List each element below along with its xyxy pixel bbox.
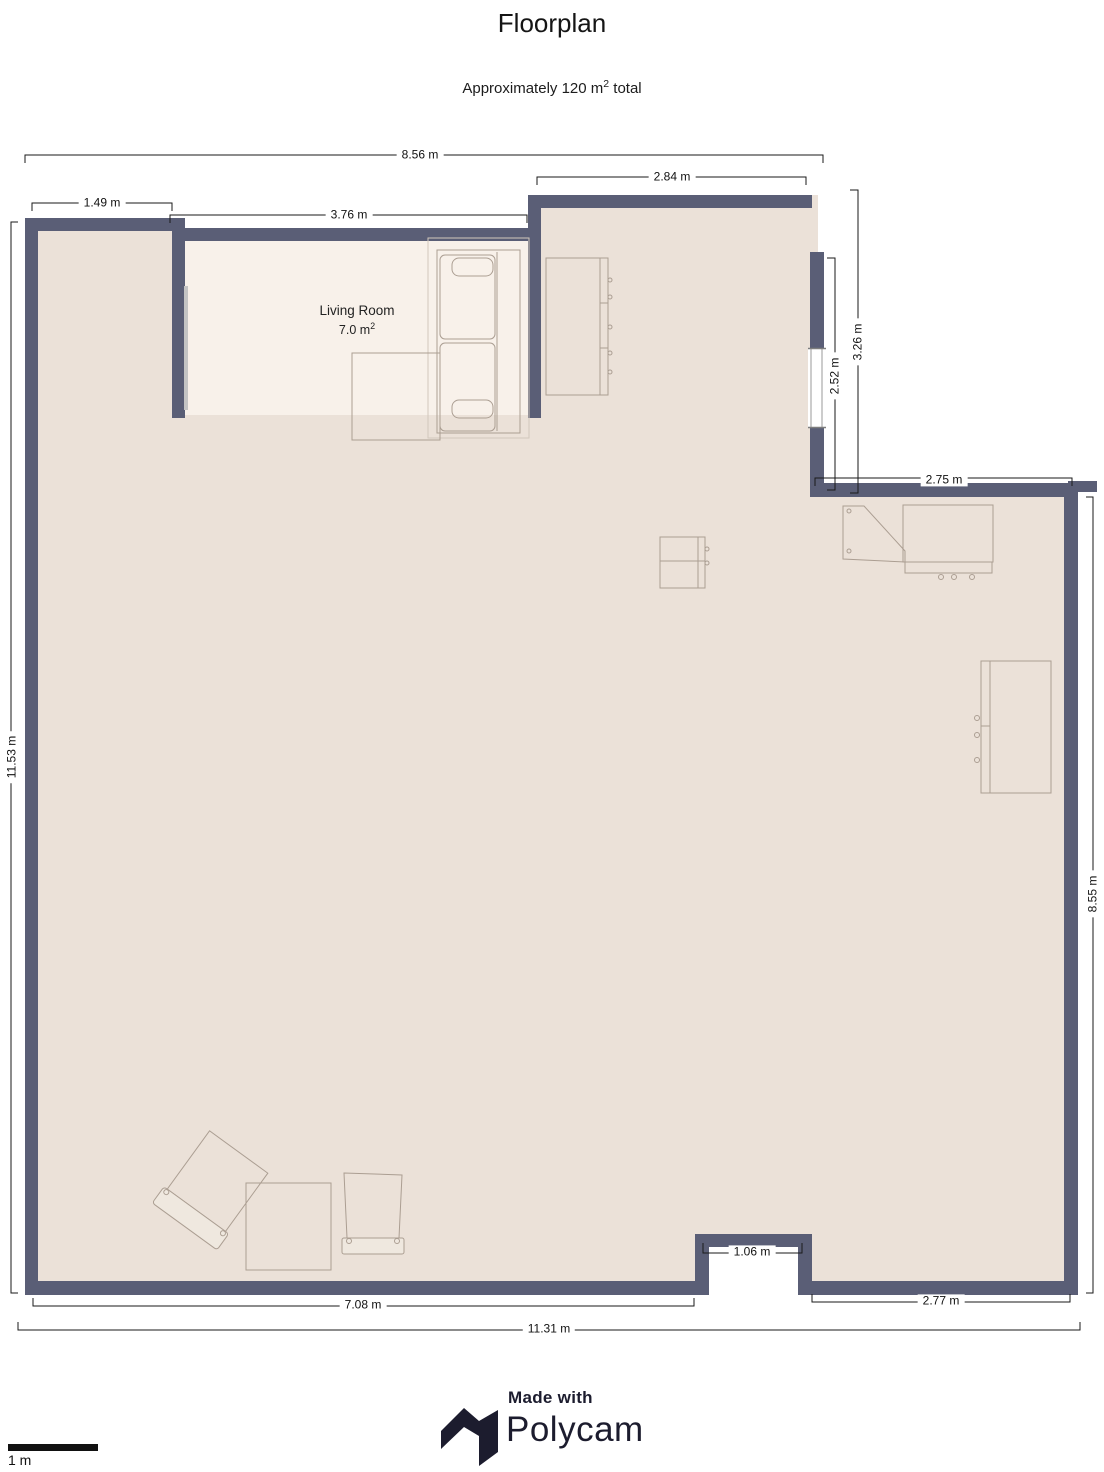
- dimension-left-height: 11.53 m: [5, 731, 18, 783]
- polycam-logo-icon: [441, 1408, 498, 1466]
- dimension-upper-right-width: 2.84 m: [649, 170, 696, 183]
- dimension-top-width: 8.56 m: [397, 148, 444, 161]
- scale-bar: [8, 1444, 98, 1451]
- dimension-living-room-width: 3.76 m: [326, 208, 373, 221]
- dimension-bottom-right-width: 2.77 m: [918, 1294, 965, 1307]
- window-right: [808, 348, 826, 428]
- dimension-right-wing-height: 3.26 m: [851, 319, 864, 366]
- dimension-door-width: 1.06 m: [729, 1245, 776, 1258]
- wall-upper-room-left: [528, 195, 541, 418]
- dimension-right-height: 8.55 m: [1086, 871, 1099, 918]
- dimension-window-height: 2.52 m: [828, 353, 841, 400]
- dimension-bottom-left-width: 7.08 m: [340, 1298, 387, 1311]
- scale-bar-label: 1 m: [8, 1452, 31, 1468]
- wall-left: [25, 218, 38, 1295]
- living-room-area: 7.0 m2: [319, 321, 394, 337]
- living-room-name: Living Room: [319, 303, 394, 318]
- made-with-text: Made with: [508, 1388, 593, 1408]
- wall-nook-right: [172, 218, 185, 418]
- wall-upper-room-top: [528, 195, 812, 208]
- dimension-nook-width: 1.49 m: [79, 196, 126, 209]
- wall-right-upper-a: [810, 252, 824, 348]
- floorplan-canvas: [0, 0, 1104, 1472]
- brand-text: Polycam: [506, 1410, 644, 1450]
- dimension-total-width: 11.31 m: [523, 1322, 575, 1335]
- wall-right: [1064, 483, 1078, 1295]
- living-room-label: Living Room 7.0 m2: [319, 303, 394, 337]
- dimension-right-wing-width: 2.75 m: [921, 473, 968, 486]
- wall-bottom-left: [25, 1281, 709, 1295]
- wall-nook-top: [25, 218, 185, 231]
- window-living-room: [184, 286, 188, 410]
- wall-living-room-top: [172, 228, 541, 241]
